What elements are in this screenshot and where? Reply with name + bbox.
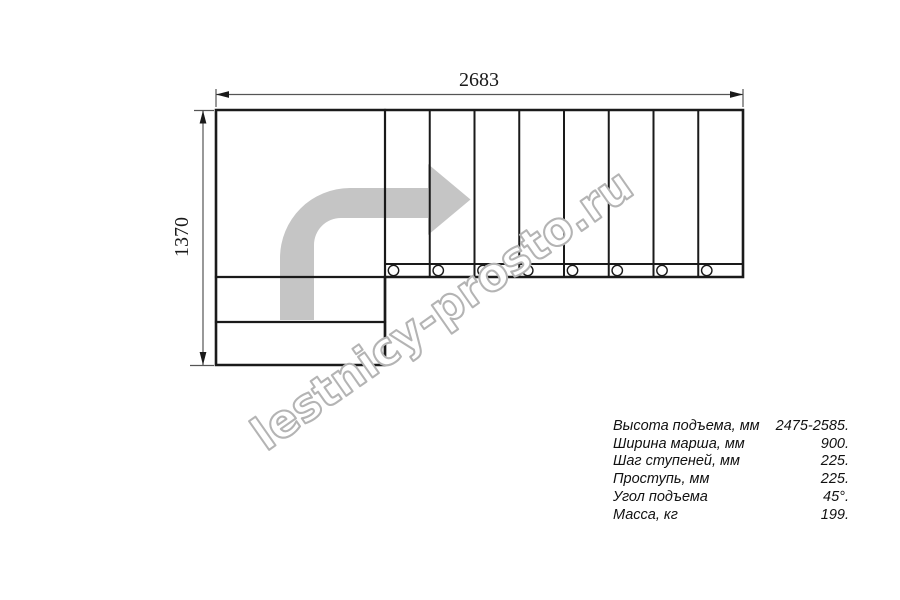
spec-label: Проступь, мм bbox=[613, 471, 709, 489]
spec-value: 900. bbox=[821, 436, 849, 454]
spec-row-mass: Масса, кг 199. bbox=[613, 507, 849, 525]
stair-plan-canvas: 2683 1370 lestnicy-prosto.ru Высота подъ… bbox=[0, 0, 900, 600]
left-dimension-label: 1370 bbox=[171, 217, 193, 257]
spec-value: 2475-2585. bbox=[776, 418, 849, 436]
spec-row-tread-depth: Проступь, мм 225. bbox=[613, 471, 849, 489]
spec-value: 45°. bbox=[823, 489, 849, 507]
top-dimension: 2683 bbox=[216, 69, 743, 107]
spec-value: 225. bbox=[821, 453, 849, 471]
spec-label: Высота подъема, мм bbox=[613, 418, 760, 436]
spec-row-step-pitch: Шаг ступеней, мм 225. bbox=[613, 453, 849, 471]
spec-row-march-width: Ширина марша, мм 900. bbox=[613, 436, 849, 454]
spec-value: 225. bbox=[821, 471, 849, 489]
left-dimension: 1370 bbox=[171, 110, 214, 366]
spec-label: Ширина марша, мм bbox=[613, 436, 745, 454]
spec-label: Масса, кг bbox=[613, 507, 678, 525]
spec-value: 199. bbox=[821, 507, 849, 525]
top-dimension-label: 2683 bbox=[459, 69, 499, 91]
spec-row-height: Высота подъема, мм 2475-2585. bbox=[613, 418, 849, 436]
baluster-circles bbox=[388, 265, 712, 275]
spec-table: Высота подъема, мм 2475-2585. Ширина мар… bbox=[613, 418, 849, 524]
spec-label: Шаг ступеней, мм bbox=[613, 453, 740, 471]
spec-label: Угол подъема bbox=[613, 489, 708, 507]
spec-row-angle: Угол подъема 45°. bbox=[613, 489, 849, 507]
